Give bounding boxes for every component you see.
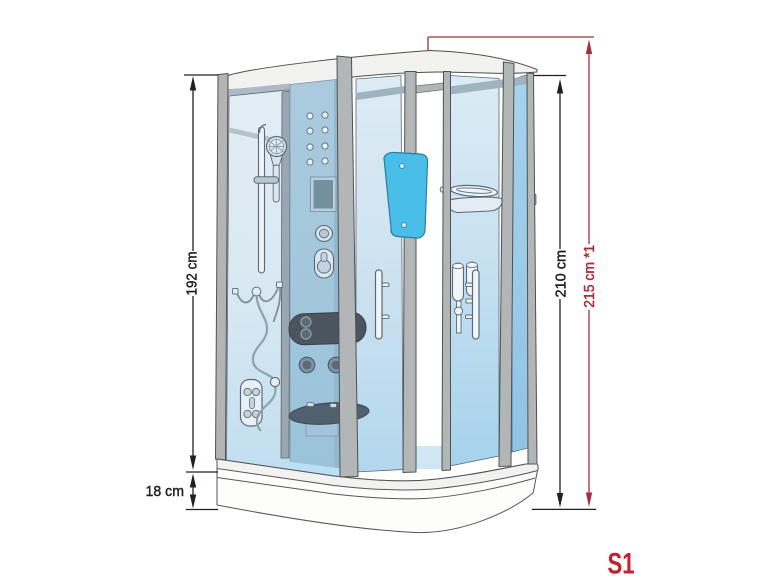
svg-text:215 cm *1: 215 cm *1 <box>581 245 598 308</box>
svg-text:192 cm: 192 cm <box>184 252 201 296</box>
svg-text:210 cm: 210 cm <box>553 250 570 298</box>
svg-text:18 cm: 18 cm <box>146 483 185 500</box>
svg-text:S1: S1 <box>608 548 635 578</box>
